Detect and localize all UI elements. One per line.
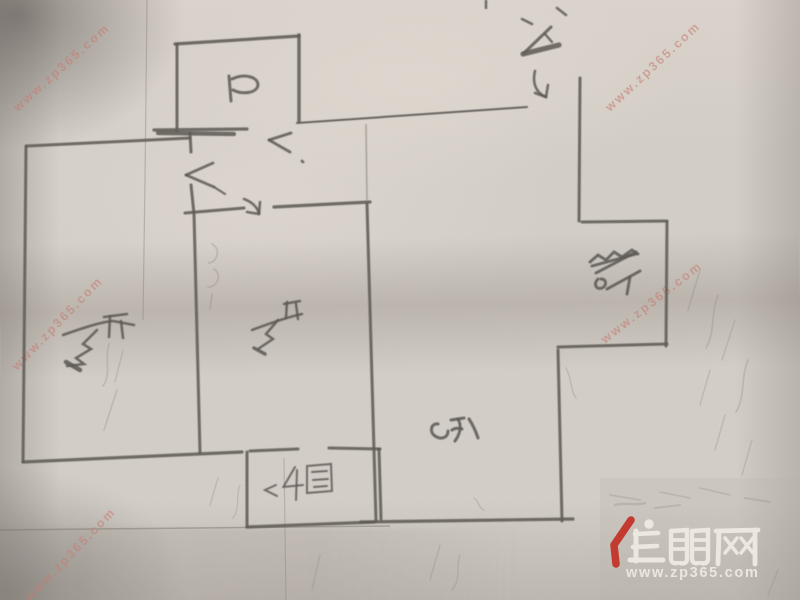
svg-text:www.zp365.com: www.zp365.com <box>625 565 760 581</box>
